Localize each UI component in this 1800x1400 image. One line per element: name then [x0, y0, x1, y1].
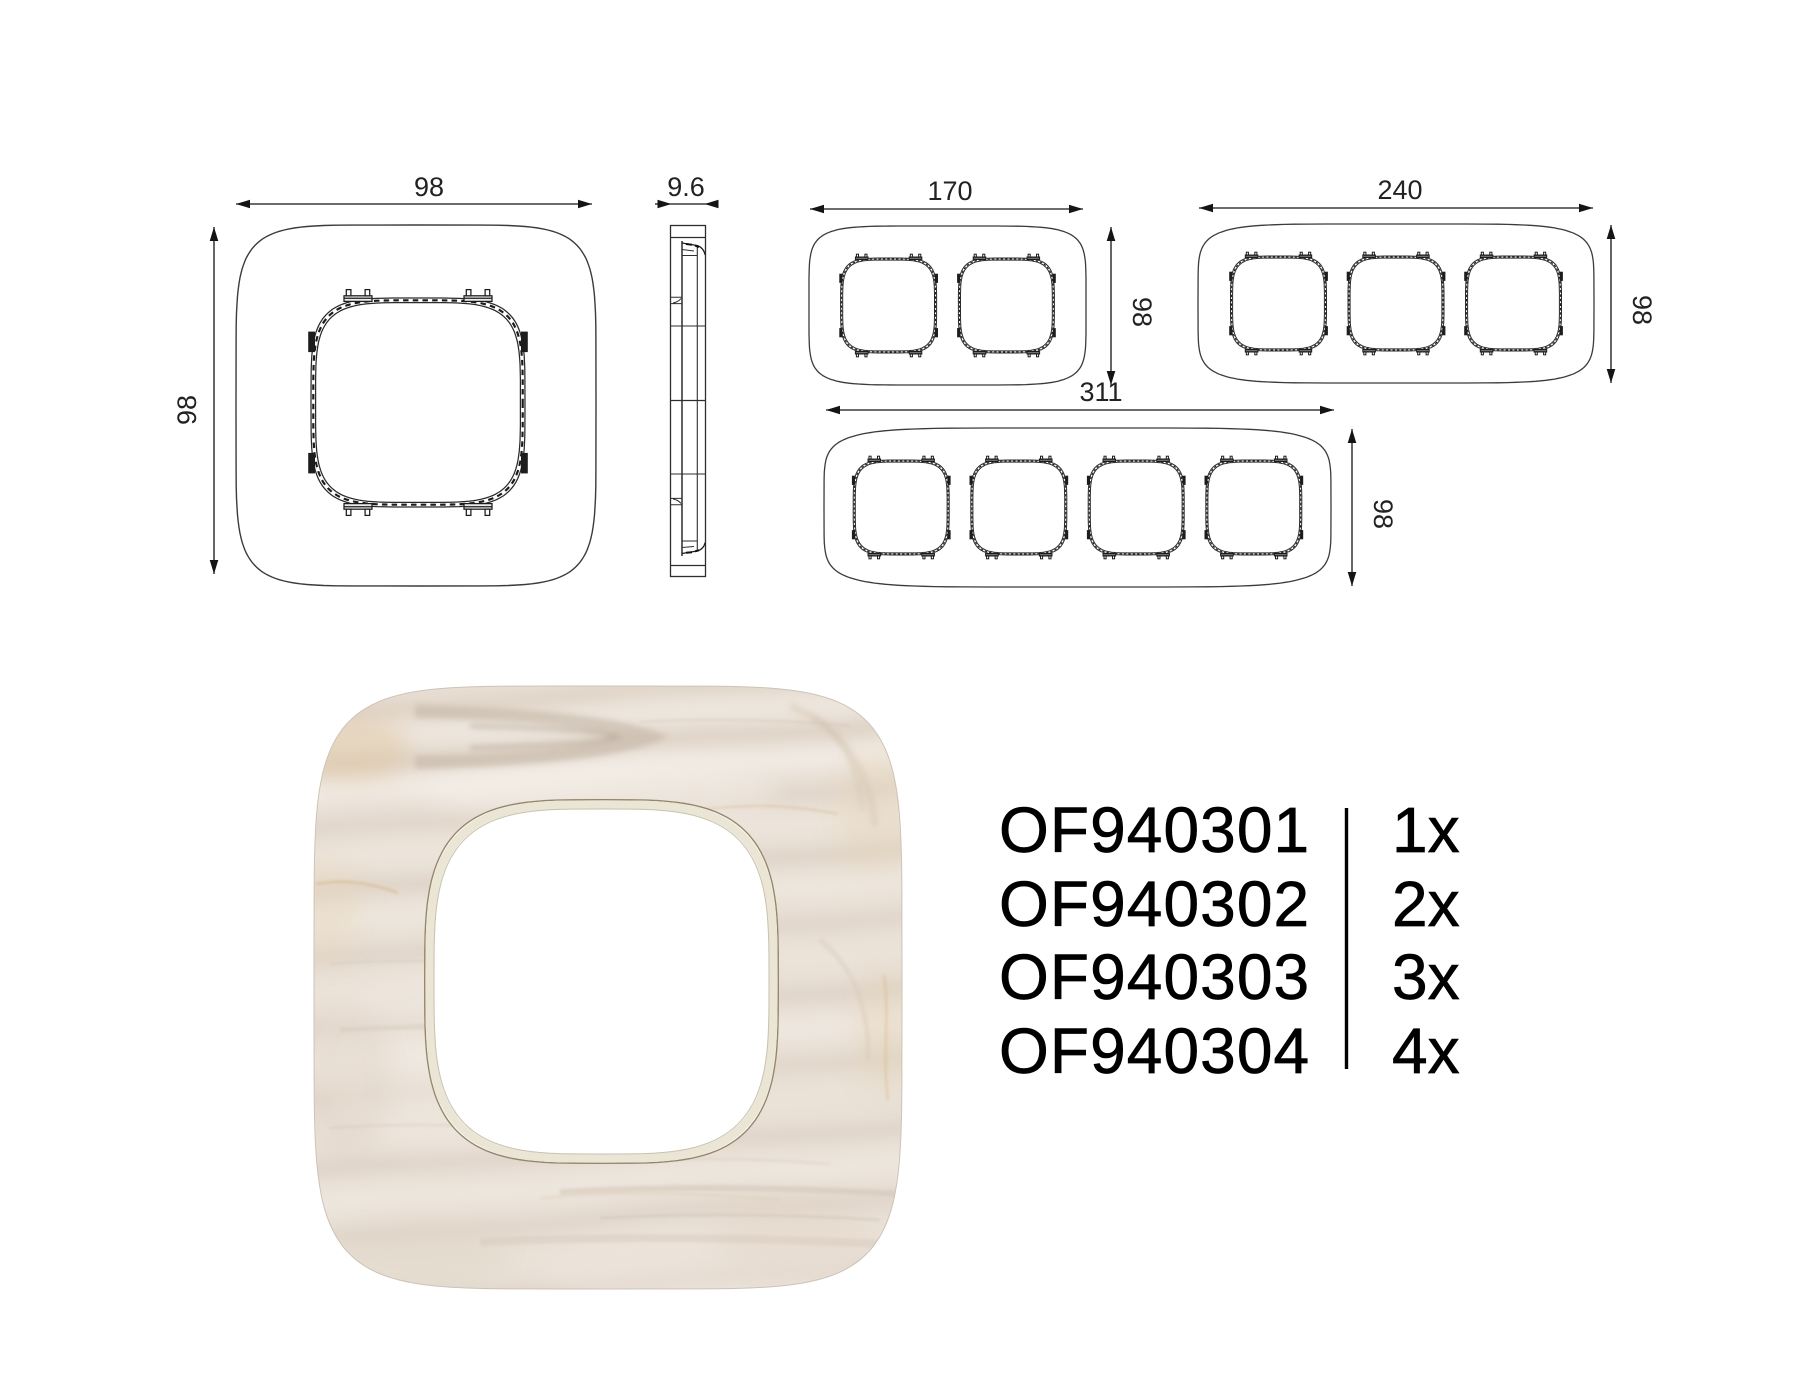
- svg-text:OF940301: OF940301: [999, 794, 1310, 866]
- svg-text:98: 98: [414, 172, 444, 202]
- svg-text:311: 311: [1079, 377, 1122, 407]
- svg-text:OF940304: OF940304: [999, 1015, 1310, 1087]
- svg-text:3x: 3x: [1392, 941, 1460, 1013]
- svg-text:OF940303: OF940303: [999, 941, 1310, 1013]
- svg-text:OF940302: OF940302: [999, 868, 1310, 940]
- svg-text:98: 98: [1627, 295, 1657, 325]
- svg-text:2x: 2x: [1392, 868, 1460, 940]
- svg-text:4x: 4x: [1392, 1015, 1460, 1087]
- svg-text:98: 98: [1368, 499, 1398, 529]
- svg-text:98: 98: [172, 395, 202, 425]
- svg-text:1x: 1x: [1392, 794, 1460, 866]
- svg-text:240: 240: [1377, 175, 1422, 205]
- svg-text:9.6: 9.6: [667, 172, 705, 202]
- svg-text:98: 98: [1127, 297, 1157, 327]
- svg-text:170: 170: [927, 176, 972, 206]
